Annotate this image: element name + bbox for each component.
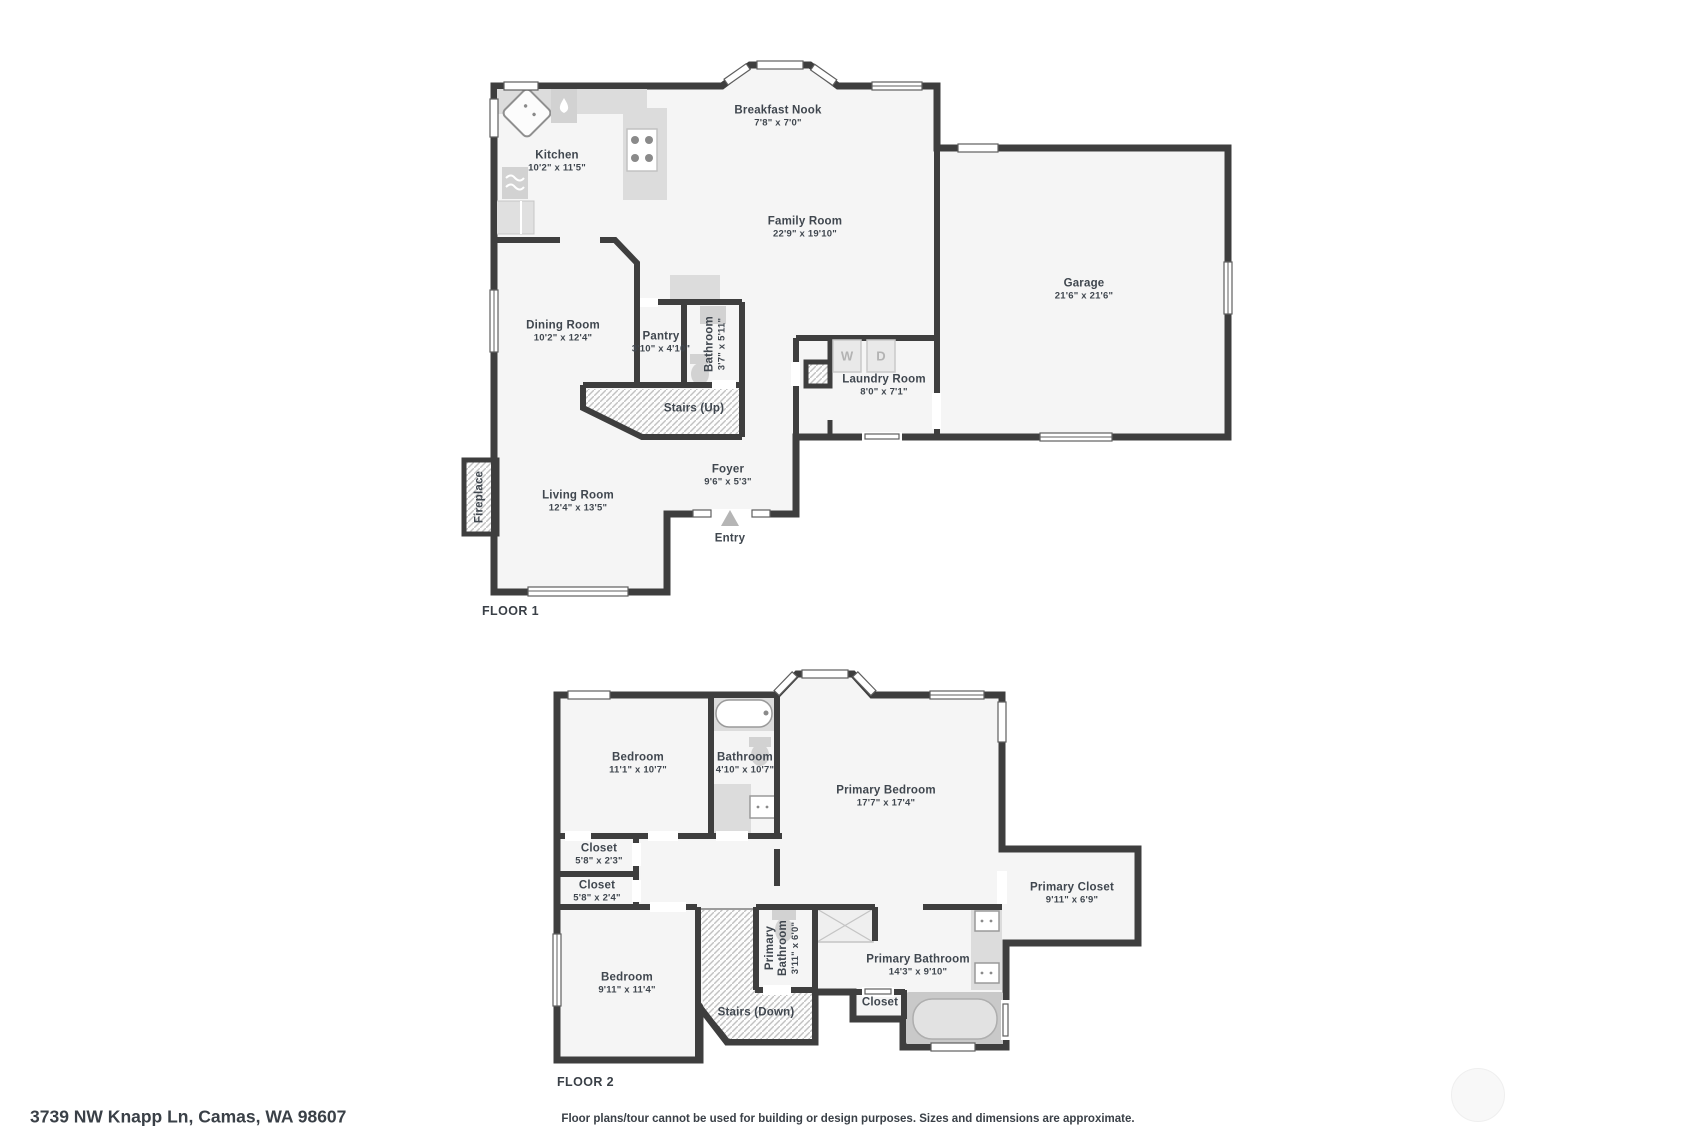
room-name: Garage [1055,278,1113,291]
room-name: Bathroom [704,316,717,372]
room-name: Primary Bedroom [836,785,936,798]
floor1-breakfast-nook-label: Breakfast Nook 7'8" x 7'0" [734,105,821,130]
dishwasher-icon [551,89,577,123]
room-name: Bedroom [598,972,655,985]
room-dims: 10'2" x 11'5" [528,163,586,175]
room-name: Closet [575,843,622,856]
room-dims: 10'2" x 12'4" [526,333,600,345]
floorplan-canvas: Breakfast Nook 7'8" x 7'0" Kitchen 10'2"… [0,0,1697,1131]
room-dims: 5'8" x 2'3" [575,856,622,868]
disclaimer-text: Floor plans/tour cannot be used for buil… [561,1113,1134,1125]
shower-icon [817,909,873,942]
room-dims: 7'8" x 7'0" [734,118,821,130]
floor1-pantry-label: Pantry 3'10" x 4'10" [632,331,690,356]
room-name: Closet [573,880,620,893]
hall-closet-hatch [806,362,830,386]
room-name: Primary Bathroom [866,954,970,967]
room-name: Stairs (Up) [664,403,724,416]
bathroom2-tub [711,695,777,731]
room-name: Bedroom [609,752,667,765]
washer-letter: W [841,349,853,364]
floor2-closet2-label: Closet 5'8" x 2'4" [573,880,620,905]
floor2-primary-bathroom-wc-label: Primary Bathroom 3'11" x 6'0" [764,909,802,987]
entry-label: Entry [715,533,745,546]
floor2-bedroom1-label: Bedroom 11'1" x 10'7" [609,752,667,777]
room-name: Stairs (Down) [718,1007,795,1020]
room-name: Primary Closet [1030,882,1114,895]
room-dims: 3'10" x 4'10" [632,344,690,356]
room-dims: 12'4" x 13'5" [542,503,614,515]
floor1-family-room-label: Family Room 22'9" x 19'10" [768,216,842,241]
floor2-stairs-label: Stairs (Down) [718,1007,795,1020]
floor2-tag: FLOOR 2 [557,1075,614,1089]
fireplace-label: Fireplace [474,471,487,523]
floor1-living-room-label: Living Room 12'4" x 13'5" [542,490,614,515]
room-name: Closet [862,997,898,1010]
room-name: Primary Bathroom [764,909,790,987]
floor2-plan [553,670,1138,1060]
room-name: Living Room [542,490,614,503]
room-name: Breakfast Nook [734,105,821,118]
floor1-bathroom-label: Bathroom 3'7" x 5'11" [704,316,729,372]
room-dims: 21'6" x 21'6" [1055,291,1113,303]
floor1-laundry-room-label: Laundry Room 8'0" x 7'1" [842,374,926,399]
floor1-foyer-label: Foyer 9'6" x 5'3" [704,464,751,489]
floor1-dining-room-label: Dining Room 10'2" x 12'4" [526,320,600,345]
floor1-stairs-label: Stairs (Up) [664,403,724,416]
room-dims: 9'11" x 6'9" [1030,895,1114,907]
floor2-primary-bathroom-label: Primary Bathroom 14'3" x 9'10" [866,954,970,979]
floor1-kitchen-label: Kitchen 10'2" x 11'5" [528,150,586,175]
room-dims: 14'3" x 9'10" [866,967,970,979]
room-name: Laundry Room [842,374,926,387]
floor2-primary-bedroom-label: Primary Bedroom 17'7" x 17'4" [836,785,936,810]
counter-block [670,275,720,302]
room-dims: 9'11" x 11'4" [598,985,655,997]
dryer-letter: D [876,349,885,364]
primary-bath-sinks [971,907,1002,990]
floor2-bathroom-label: Bathroom 4'10" x 10'7" [716,752,774,777]
room-name: Bathroom [716,752,774,765]
floor2-closet1-label: Closet 5'8" x 2'3" [575,843,622,868]
floor1-garage-label: Garage 21'6" x 21'6" [1055,278,1113,303]
floor2-closet3-label: Closet [862,997,898,1010]
watermark-circle [1451,1068,1505,1122]
room-dims: 8'0" x 7'1" [842,387,926,399]
floorplan-drawing [0,0,1697,1131]
room-name: Foyer [704,464,751,477]
room-name: Pantry [632,331,690,344]
stove-icon [627,129,657,171]
room-dims: 4'10" x 10'7" [716,765,774,777]
floor1-tag: FLOOR 1 [482,604,539,618]
room-dims: 22'9" x 19'10" [768,229,842,241]
room-dims: 11'1" x 10'7" [609,765,667,777]
room-dims: 3'7" x 5'11" [717,316,729,372]
room-dims: 17'7" x 17'4" [836,798,936,810]
primary-tub [906,992,1004,1045]
room-name: Entry [715,533,745,546]
floor2-primary-closet-label: Primary Closet 9'11" x 6'9" [1030,882,1114,907]
room-dims: 5'8" x 2'4" [573,893,620,905]
room-name: Kitchen [528,150,586,163]
floor2-bedroom2-label: Bedroom 9'11" x 11'4" [598,972,655,997]
property-address: 3739 NW Knapp Ln, Camas, WA 98607 [30,1107,346,1128]
room-name: Dining Room [526,320,600,333]
room-name: Family Room [768,216,842,229]
room-name: Fireplace [474,471,487,523]
room-dims: 9'6" x 5'3" [704,477,751,489]
room-dims: 3'11" x 6'0" [790,909,802,987]
